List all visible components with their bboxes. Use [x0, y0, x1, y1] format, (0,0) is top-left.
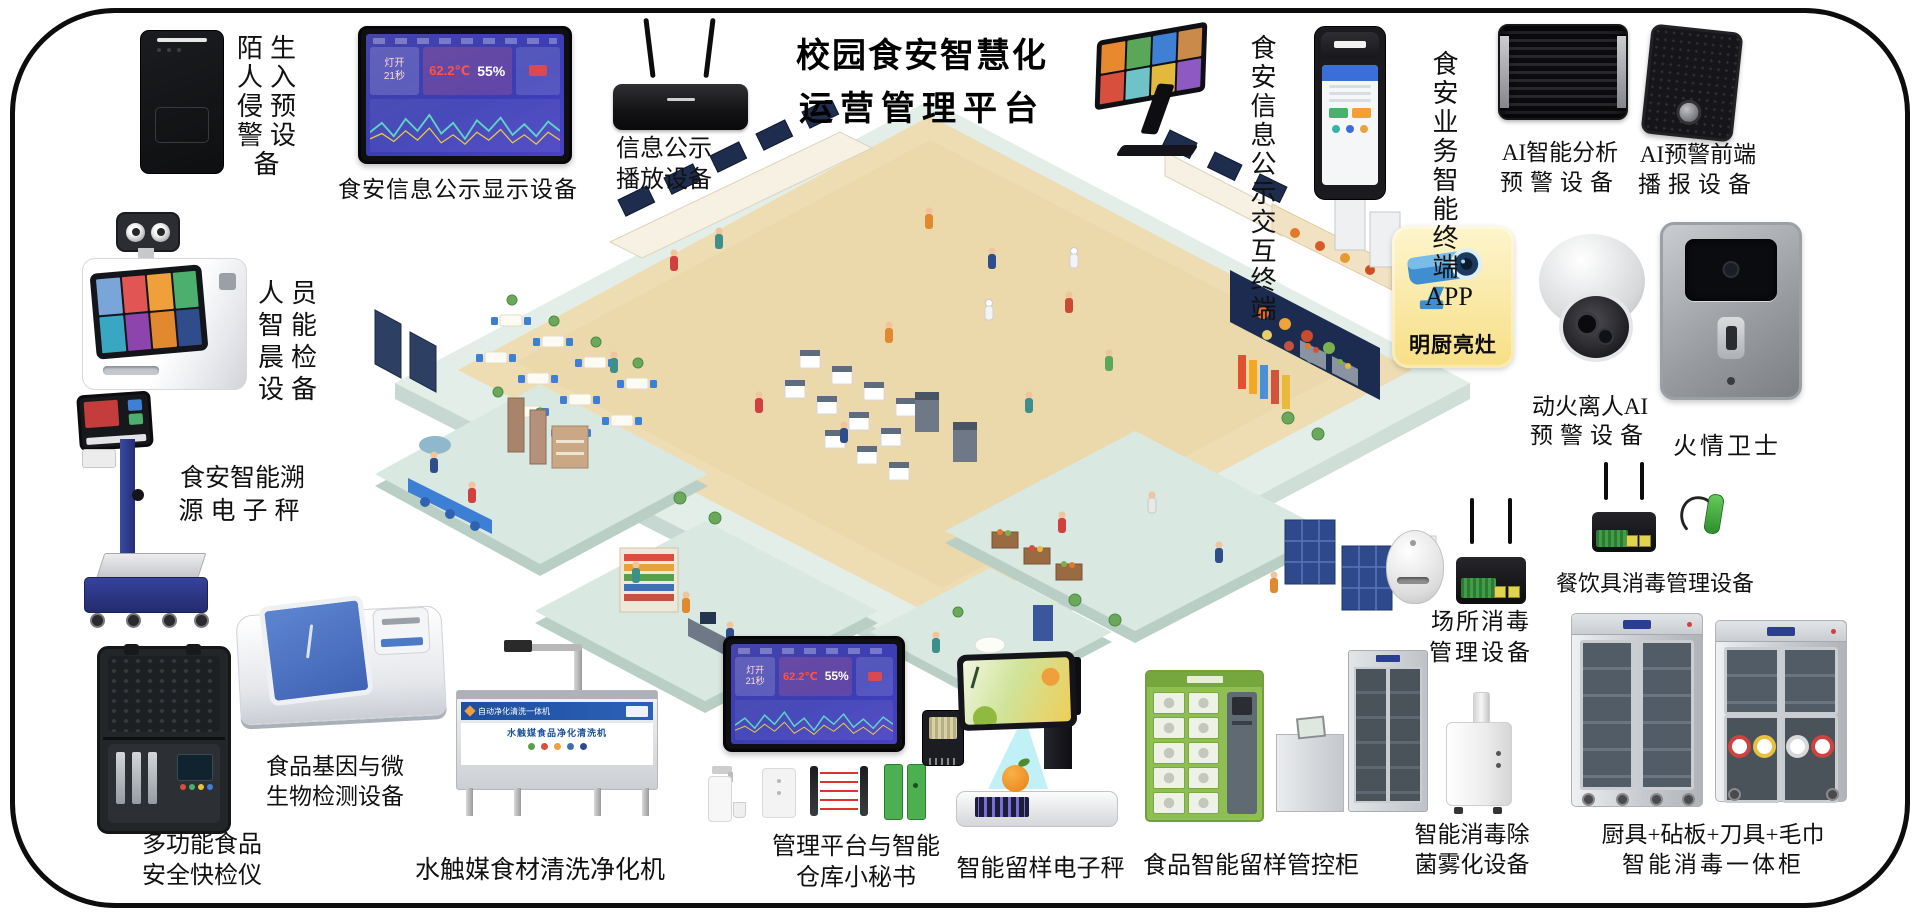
smoke-sensor-device	[1386, 530, 1442, 602]
camera-dots	[157, 48, 181, 52]
power-panel: 灯开21秒	[370, 47, 419, 95]
laptop	[1296, 716, 1326, 740]
disinfect-dongle-device	[1674, 486, 1726, 550]
camera-slot	[157, 38, 207, 42]
handheld-terminal-device	[1314, 26, 1386, 200]
fire-guard-device	[1660, 222, 1802, 400]
label-washer: 水触媒食材清洗净化机	[400, 850, 680, 886]
dual-screen-head	[957, 651, 1078, 731]
usb-slot	[1718, 317, 1745, 359]
scale-pole	[120, 439, 135, 567]
label-morning-check: 人员智能 晨检设备	[258, 278, 324, 406]
temp-humidity-panel: 62.2℃55%	[779, 657, 852, 696]
label-place-disinfect: 场所消毒管理设备	[1420, 606, 1542, 668]
label-fire-guard: 火情卫士	[1662, 426, 1792, 461]
dashboard-screen: 灯开21秒 62.2℃55%	[366, 34, 564, 156]
prep-desk	[1276, 734, 1344, 812]
test-tray	[108, 744, 220, 823]
kiosk-app-tiles	[1100, 28, 1203, 105]
label-ai-analysis: AI智能分析预警设备	[1490, 138, 1630, 198]
label-stranger-intrusion: 陌生人入 侵预警设 备	[233, 34, 307, 179]
green-sensor-boards-device	[884, 764, 926, 818]
device-base	[235, 605, 446, 726]
terminal-screen	[1322, 65, 1378, 185]
management-platform-display: 灯开21秒 62.2℃55%	[723, 636, 905, 752]
info-display-device: 灯开21秒 62.2℃55%	[358, 26, 572, 164]
diagram-title: 校园食安智慧化 运营管理平台	[762, 28, 1082, 130]
infographic-canvas: 陌生人入 侵预警设 备 灯开21秒 62.2℃55% 食安信息公示显示设备 信息…	[0, 0, 1920, 916]
control-column	[1227, 692, 1257, 814]
logo-mark	[667, 98, 695, 101]
thermal-lens	[1559, 292, 1633, 362]
trend-chart	[370, 99, 560, 152]
tray-screen	[177, 754, 213, 781]
sensor-box-device	[762, 768, 796, 818]
disinfect-cabinet-2-device	[1715, 620, 1847, 802]
paper-slot	[1334, 41, 1366, 48]
label-broadcast: 信息公示播放设备	[605, 134, 723, 196]
side-bracket-left	[1500, 36, 1509, 108]
app-buttons	[1329, 108, 1371, 118]
printer-module	[372, 607, 430, 656]
device-body	[82, 258, 247, 390]
scan-panel	[155, 107, 209, 143]
tile-grid	[96, 271, 202, 353]
label-kitchen-cabinet: 厨具+砧板+刀具+毛巾智能消毒一体柜	[1592, 820, 1834, 880]
sample-scale-device	[956, 653, 1118, 827]
disinfect-cabinet-1-device	[1571, 613, 1703, 807]
washer-banner: 自动净化清洗一体机	[461, 702, 653, 720]
alert-panel	[856, 657, 893, 696]
label-sample-scale: 智能留样电子秤	[948, 848, 1133, 883]
label-info-display: 食安信息公示显示设备	[330, 170, 586, 204]
antenna-left	[643, 18, 655, 78]
fogger-device	[1446, 692, 1516, 814]
weighing-platform	[96, 553, 207, 580]
mingchu-label: 明厨亮灶	[1392, 329, 1514, 359]
dashboard-header	[373, 38, 557, 44]
scale-screen	[76, 390, 154, 451]
side-bracket-right	[1617, 36, 1626, 108]
foam-lid	[108, 656, 220, 732]
banner-logo	[464, 705, 475, 716]
trend-chart	[735, 700, 893, 740]
label-pos-app: 食安业务 智能终端 APP	[1418, 50, 1480, 311]
antenna-right	[703, 18, 715, 78]
faucet-head	[504, 640, 532, 652]
label-tableware: 餐饮具消毒管理设备	[1552, 566, 1758, 598]
scale-base	[84, 577, 208, 613]
label-gene-detector: 食品基因与微生物检测设备	[255, 752, 415, 812]
ai-speaker-device	[1641, 23, 1744, 142]
check-screen	[89, 264, 208, 359]
speaker-knob	[1675, 99, 1702, 126]
gene-detector-device	[234, 582, 460, 743]
orange-fruit	[1002, 765, 1029, 792]
app-icons	[1322, 125, 1378, 133]
label-trace-scale: 食安智能溯源电子秤	[160, 462, 325, 528]
fruit-ad-screen	[963, 657, 1071, 725]
sanitizer-dispenser-device	[692, 760, 748, 824]
alert-panel	[516, 47, 560, 95]
ticket-printer	[82, 449, 116, 468]
label-kiosk: 食安信息 公示交互 终端	[1236, 34, 1298, 324]
sample-station-device	[1276, 650, 1428, 818]
kiosk-screen	[1095, 22, 1208, 111]
ai-analysis-device	[1498, 24, 1628, 120]
camera-eye	[126, 223, 145, 242]
card-slot	[103, 366, 159, 375]
dome-camera-device	[1533, 234, 1651, 362]
set-top-box	[613, 84, 748, 130]
label-management-platform: 管理平台与智能仓库小秘书	[728, 832, 984, 894]
broadcast-box-device	[613, 18, 748, 130]
weight-display	[975, 797, 1029, 817]
glass-cabinet	[1348, 650, 1428, 812]
temp-humidity-panel: 62.2℃55%	[423, 47, 512, 95]
sample-windows	[1153, 692, 1219, 814]
alert-chip	[529, 65, 547, 76]
morning-check-device	[82, 212, 247, 390]
faucet-arm	[574, 648, 582, 694]
blue-screen	[259, 595, 374, 707]
tableware-gateway-device	[1592, 462, 1656, 552]
interactive-kiosk-device	[1093, 24, 1215, 158]
washer-front-panel: 水触媒食品净化清洗机	[461, 723, 653, 765]
camera-eye	[151, 223, 170, 242]
glass-door	[1640, 640, 1694, 790]
rapid-test-case-device	[97, 646, 231, 834]
label-sample-cabinet: 食品智能留样管控柜	[1140, 845, 1362, 880]
label-rapid-test: 多功能食品安全快检仪	[132, 830, 272, 892]
washer-device: 自动净化清洗一体机 水触媒食品净化清洗机	[456, 640, 658, 822]
label-fire-ai: 动火离人AI预警设备	[1524, 392, 1656, 450]
laser-beams	[820, 772, 858, 810]
weighing-platform	[956, 791, 1118, 827]
sample-cabinet-device	[1145, 670, 1264, 822]
washer-body: 自动净化清洗一体机 水触媒食品净化清洗机	[456, 690, 658, 790]
fogger-body	[1446, 722, 1512, 806]
place-gateway-device	[1456, 498, 1526, 604]
receipt-printer	[1321, 32, 1379, 58]
dual-camera-module	[116, 212, 180, 252]
stranger-intrusion-device	[140, 30, 224, 174]
camera-window	[1685, 239, 1777, 301]
kiosk-base	[1116, 145, 1199, 156]
label-ai-speaker: AI预警前端播报设备	[1630, 140, 1766, 200]
app-header	[1322, 65, 1378, 81]
power-panel: 灯开21秒	[735, 657, 775, 696]
glass-door	[1580, 640, 1634, 790]
laser-barrier-device	[810, 766, 868, 816]
label-fogger: 智能消毒除菌雾化设备	[1404, 820, 1540, 880]
dashboard-screen: 灯开21秒 62.2℃55%	[731, 644, 897, 744]
